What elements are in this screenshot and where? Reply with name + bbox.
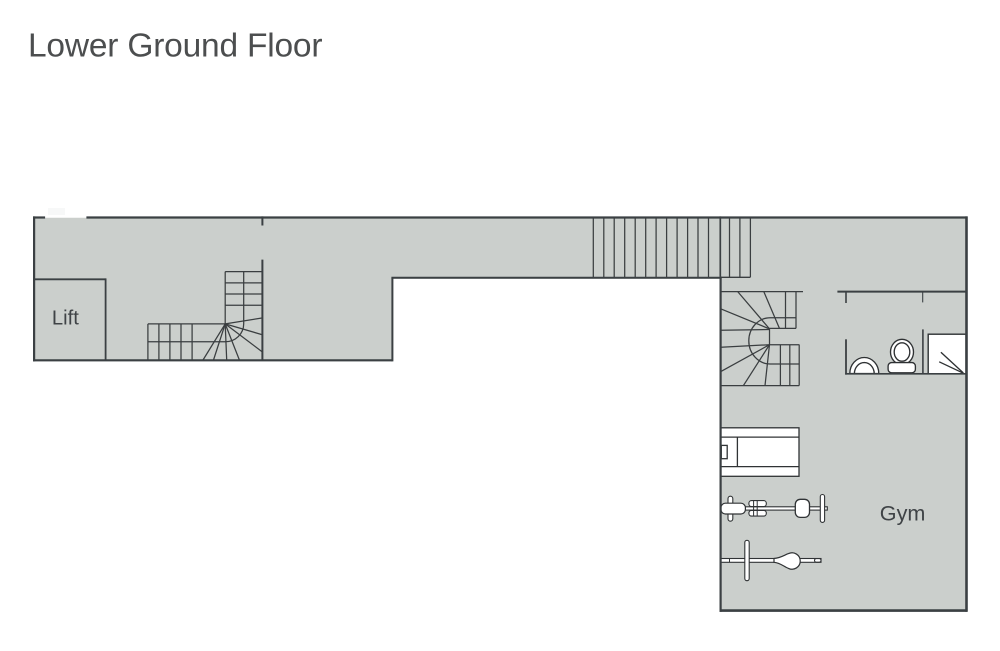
svg-text:Lift: Lift xyxy=(52,308,79,330)
svg-text:Gym: Gym xyxy=(880,500,926,525)
svg-text:Lower Ground Floor: Lower Ground Floor xyxy=(28,28,322,65)
